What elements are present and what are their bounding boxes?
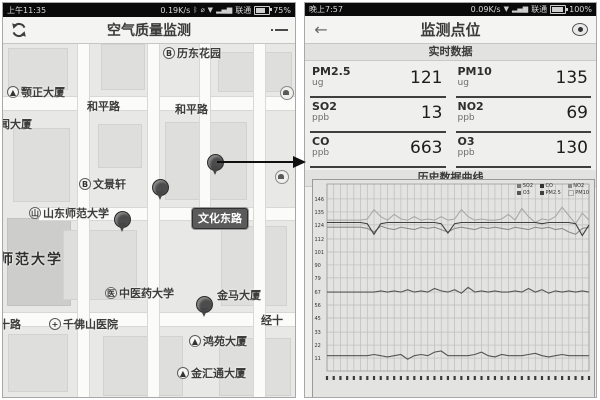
poi-icon: 山 [29,207,41,219]
left-status-bar: 上午11:35 0.19K/s ᛒ ⌀ ▼ ▂▄▆ 联通 75% [3,3,295,17]
signal-icon: ▂▄▆ [512,6,528,13]
map-canvas[interactable]: B历东花园▲颚正大厦和平路和平路闻大厦B文景轩山山东师范大学师范大学医中医药大学… [3,44,295,398]
map-label: 十路 [3,316,21,332]
svg-text:90: 90 [315,263,321,269]
net-speed: 0.19K/s [160,6,190,15]
map-app-screen: 上午11:35 0.19K/s ᛒ ⌀ ▼ ▂▄▆ 联通 75% 空气质量监测 [2,2,296,398]
road-vertical-2 [147,44,160,398]
battery-icon [550,5,566,14]
poi-icon: 医 [105,287,117,299]
carrier-label: 联通 [235,5,251,16]
pollutant-cell-no2: NO2 ppb 69 [456,98,592,133]
pollutant-cell-pm10: PM10 ug 135 [456,63,592,98]
svg-text:11: 11 [315,356,321,362]
history-line-chart: SO2CONO2O3PM2.5PM10 14613512411210190796… [312,179,595,398]
legend-item: PM2.5 [540,190,561,196]
view-toggle-button[interactable] [571,21,589,39]
legend-item: O3 [517,190,533,196]
pollutant-value: 130 [556,138,588,158]
battery-percent: 100% [569,5,592,14]
legend-item: SO2 [517,183,533,189]
page-title: 监测点位 [336,19,565,40]
pollutant-value: 69 [566,103,588,123]
refresh-button[interactable] [10,21,28,39]
svg-text:79: 79 [315,276,321,282]
clock: 上午11:35 [7,5,46,16]
legend-item: CO [540,183,561,189]
pin-detail-arrow [214,151,306,173]
chart-plot-area: 1461351241121019079675645332211 [313,180,594,397]
svg-text:124: 124 [315,223,325,229]
road-name-badge: 文化东路 [192,208,248,229]
map-label: 和平路 [175,101,208,117]
map-label: ▲鸿苑大厦 [189,333,247,349]
realtime-section-header: 实时数据 [305,44,596,61]
svg-text:56: 56 [315,303,321,309]
map-label: 经十 [261,312,283,328]
pollutant-value: 121 [410,68,442,88]
map-label: +千佛山医院 [49,316,118,332]
page-title: 空气质量监测 [34,20,264,40]
pollutant-cell-co: CO ppb 663 [310,133,446,168]
wifi-icon: ▼ [208,7,213,14]
battery-icon [254,6,270,15]
pollutant-value: 135 [556,68,588,88]
map-pin-marker[interactable] [196,296,213,313]
bluetooth-icon: ᛒ [193,7,197,14]
pollutant-cell-pm25: PM2.5 ug 121 [310,63,446,98]
map-label: ▲金汇通大厦 [177,365,246,381]
clock: 晚上7:57 [309,4,343,15]
poi-icon: ▲ [177,367,189,379]
legend-item: NO2 [568,183,589,189]
svg-text:45: 45 [315,316,321,322]
map-label: ▲颚正大厦 [7,84,65,100]
poi-icon: + [49,318,61,330]
poi-dot-icon [280,86,294,100]
map-label: 金马大厦 [217,287,261,303]
map-pin-marker[interactable] [152,179,169,196]
pollutant-value: 663 [410,138,442,158]
svg-text:146: 146 [315,197,325,203]
poi-icon: ▲ [7,86,19,98]
map-label: 师范大学 [3,249,63,269]
svg-text:33: 33 [315,330,321,336]
pollutant-cell-o3: O3 ppb 130 [456,133,592,168]
back-button[interactable]: ← [312,21,330,39]
poi-icon: ▲ [189,335,201,347]
pollutant-cell-so2: SO2 ppb 13 [310,98,446,133]
road-vertical-3 [199,44,211,214]
chart-legend: SO2CONO2O3PM2.5PM10 [517,183,589,196]
road-vertical-4 [253,44,266,398]
right-title-bar: ← 监测点位 [305,16,596,44]
wifi-icon: ▼ [504,6,509,13]
eye-icon [572,23,588,36]
right-status-bar: 晚上7:57 0.09K/s ▼ ▂▄▆ 联通 100% [305,3,596,16]
net-speed: 0.09K/s [471,5,501,14]
monitor-detail-screen: 晚上7:57 0.09K/s ▼ ▂▄▆ 联通 100% ← 监测点位 实时数据… [304,2,597,398]
map-label: 和平路 [87,98,120,114]
refresh-icon [11,22,27,38]
poi-icon: B [163,47,175,59]
map-label: B文景轩 [79,176,126,192]
realtime-data-grid: PM2.5 ug 121 PM10 ug 135 SO2 ppb 13 NO2 … [305,61,596,168]
mute-icon: ⌀ [200,7,204,14]
poi-icon: B [79,178,91,190]
battery-percent: 75% [273,6,291,15]
list-menu-button[interactable] [270,21,288,39]
svg-text:67: 67 [315,290,321,296]
map-label: 闻大厦 [3,116,32,132]
carrier-label: 联通 [531,4,547,15]
legend-item: PM10 [568,190,589,196]
left-title-bar: 空气质量监测 [3,17,295,44]
map-pin-marker[interactable] [114,211,131,228]
pollutant-value: 13 [421,103,443,123]
svg-text:22: 22 [315,343,321,349]
svg-text:112: 112 [315,237,325,243]
map-label: B历东花园 [163,45,221,61]
signal-icon: ▂▄▆ [216,7,232,14]
svg-text:101: 101 [315,250,325,256]
map-label: 医中医药大学 [105,285,174,301]
svg-text:135: 135 [315,210,325,216]
map-label: 山山东师范大学 [29,205,109,221]
